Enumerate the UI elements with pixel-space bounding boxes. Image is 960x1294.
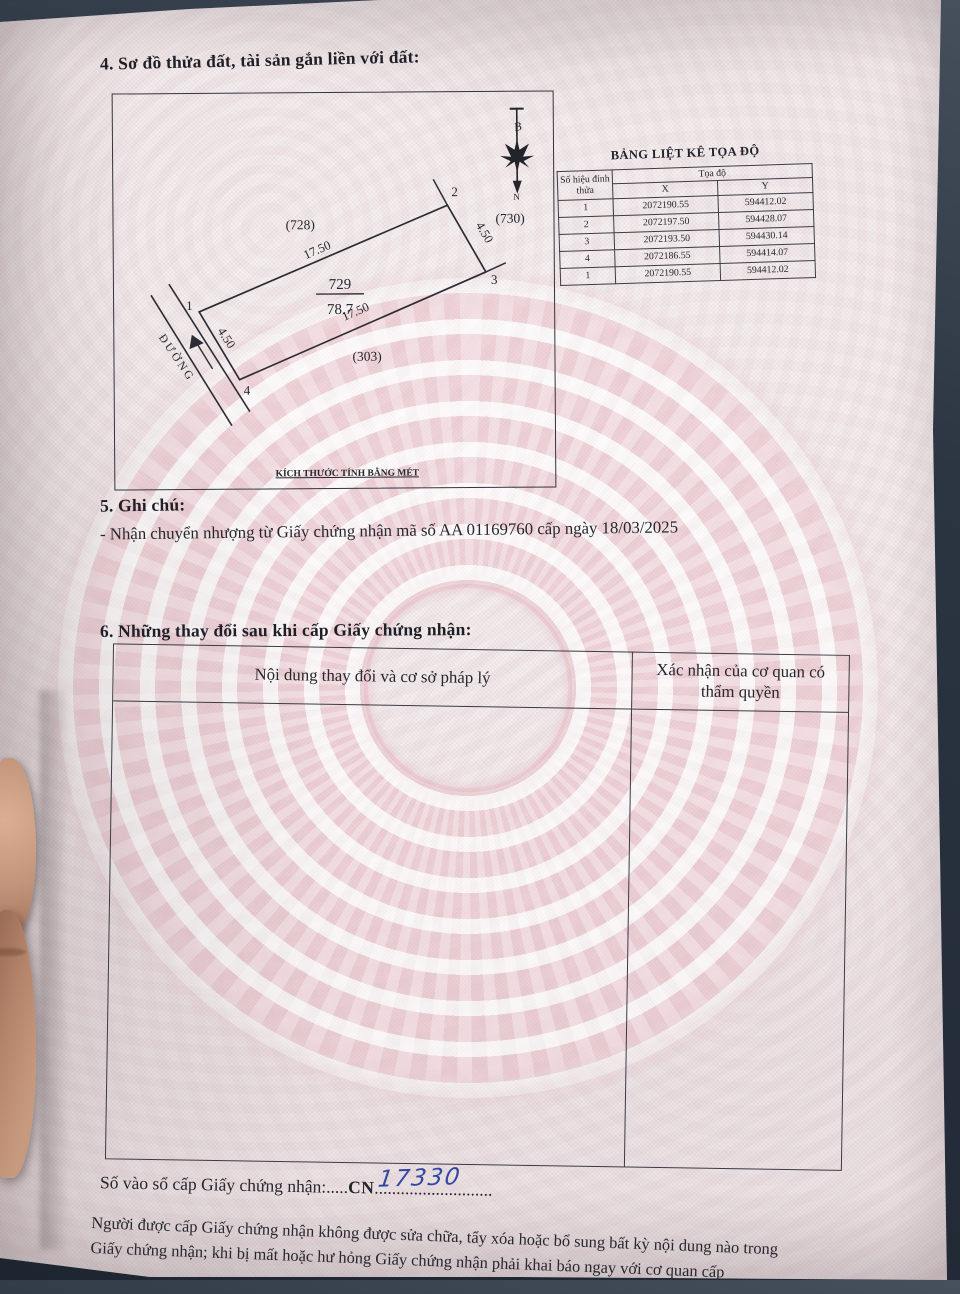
dim-right-edge: 4.50 (473, 219, 496, 245)
vertex-4-label: 4 (244, 383, 251, 398)
section5-heading: 5. Ghi chú: (100, 494, 186, 516)
serial-line: Số vào sổ cấp Giấy chứng nhận:.....CN...… (100, 1172, 493, 1201)
north-compass-icon: B N (500, 108, 535, 202)
boundary-tick-v2 (433, 179, 447, 205)
photographed-land-certificate: { "document": { "section4_heading": "4. … (0, 0, 960, 1280)
warning-paragraph: Người được cấp Giấy chứng nhận không đượ… (90, 1210, 960, 1294)
coordinate-table-title: BẢNG LIỆT KÊ TỌA ĐỘ (554, 142, 816, 165)
coordinate-table-section: BẢNG LIỆT KÊ TỌA ĐỘ Số hiệu đỉnh thửa Tọ… (554, 142, 820, 286)
coordinate-table: Số hiệu đỉnh thửa Tọa độ X Y 1 2072190.5… (557, 163, 816, 286)
plot-diagram-box: 1 2 3 4 (728) (730) (303) 17.50 17.50 4.… (112, 90, 557, 490)
dim-top-edge: 17.50 (301, 238, 332, 262)
serial-dots-left: ..... (326, 1177, 348, 1197)
changes-col1-empty-cell (106, 701, 631, 1166)
serial-number-handwritten: 17330 (377, 1164, 464, 1193)
road-line-outer (151, 295, 232, 427)
diagram-caption: KÍCH THƯỚC TÍNH BẰNG MÉT (276, 465, 420, 479)
col-header-vertex: Số hiệu đỉnh thửa (557, 170, 613, 200)
coord-vertex: 3 (559, 232, 615, 251)
changes-col2-header: Xác nhận của cơ quan có thẩm quyền (631, 653, 849, 712)
coord-y: 594412.02 (720, 260, 816, 280)
coord-vertex: 4 (560, 249, 616, 268)
boundary-tick-v3 (486, 263, 506, 272)
vertex-2-label: 2 (451, 184, 458, 199)
road-line-inner (169, 284, 250, 413)
dim-left-edge: 4.50 (215, 325, 239, 351)
plot-diagram: 1 2 3 4 (728) (730) (303) 17.50 17.50 4.… (113, 91, 556, 489)
svg-text:B: B (513, 119, 524, 134)
coord-vertex: 1 (560, 266, 616, 285)
section4-heading: 4. Sơ đồ thửa đất, tài sản gắn liền với … (100, 46, 420, 74)
serial-dotted-line: ...........................17330 (374, 1178, 493, 1201)
serial-prefix: CN (348, 1177, 375, 1198)
neighbor-parcel-top: (728) (285, 217, 314, 232)
parcel-number: 729 (329, 277, 352, 293)
changes-table-body (106, 701, 848, 1169)
changes-table: Nội dung thay đổi và cơ sở pháp lý Xác n… (105, 643, 850, 1171)
section6-heading: 6. Những thay đổi sau khi cấp Giấy chứng… (100, 619, 472, 642)
coord-vertex: 2 (559, 215, 615, 234)
parcel-area: 78.7 (327, 302, 354, 318)
changes-col1-header: Nội dung thay đổi và cơ sở pháp lý (113, 644, 632, 708)
changes-col2-empty-cell (624, 710, 848, 1170)
coord-x: 2072190.55 (615, 263, 720, 283)
neighbor-parcel-right: (730) (495, 211, 524, 226)
vertex-1-label: 1 (186, 298, 193, 313)
svg-text:N: N (513, 192, 520, 202)
certificate-page: 4. Sơ đồ thửa đất, tài sản gắn liền với … (0, 0, 960, 1280)
vertex-3-label: 3 (491, 272, 498, 287)
serial-label: Số vào sổ cấp Giấy chứng nhận: (100, 1172, 327, 1196)
neighbor-parcel-bottom: (303) (352, 349, 381, 364)
coord-vertex: 1 (558, 198, 614, 217)
